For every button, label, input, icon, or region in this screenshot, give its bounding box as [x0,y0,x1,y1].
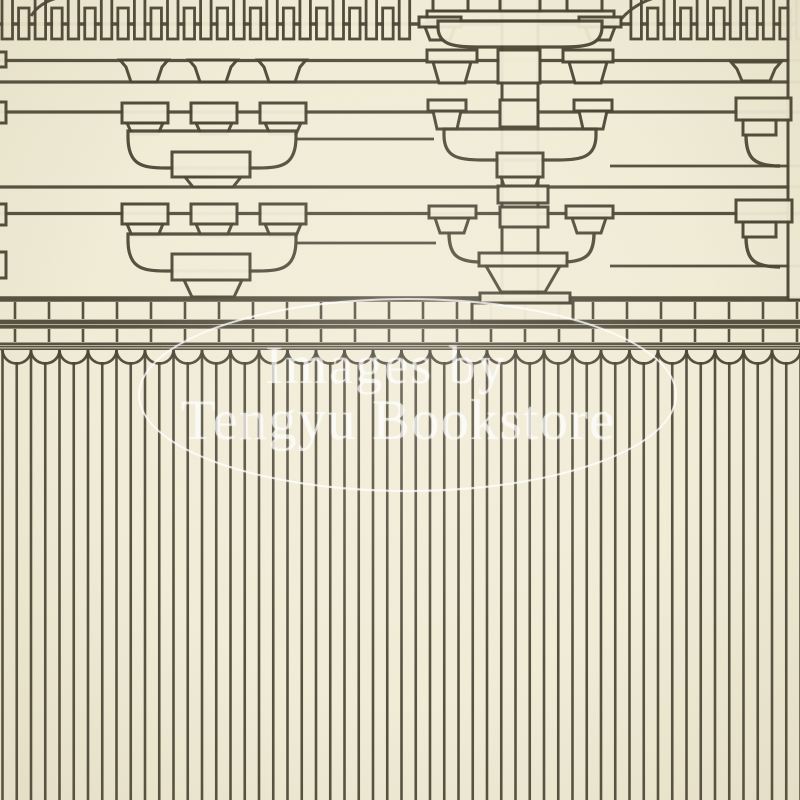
scanned-print-page: Images by Tengyu Bookstore [0,0,800,800]
paper-grain [0,0,800,800]
temple-elevation-drawing [0,0,800,800]
